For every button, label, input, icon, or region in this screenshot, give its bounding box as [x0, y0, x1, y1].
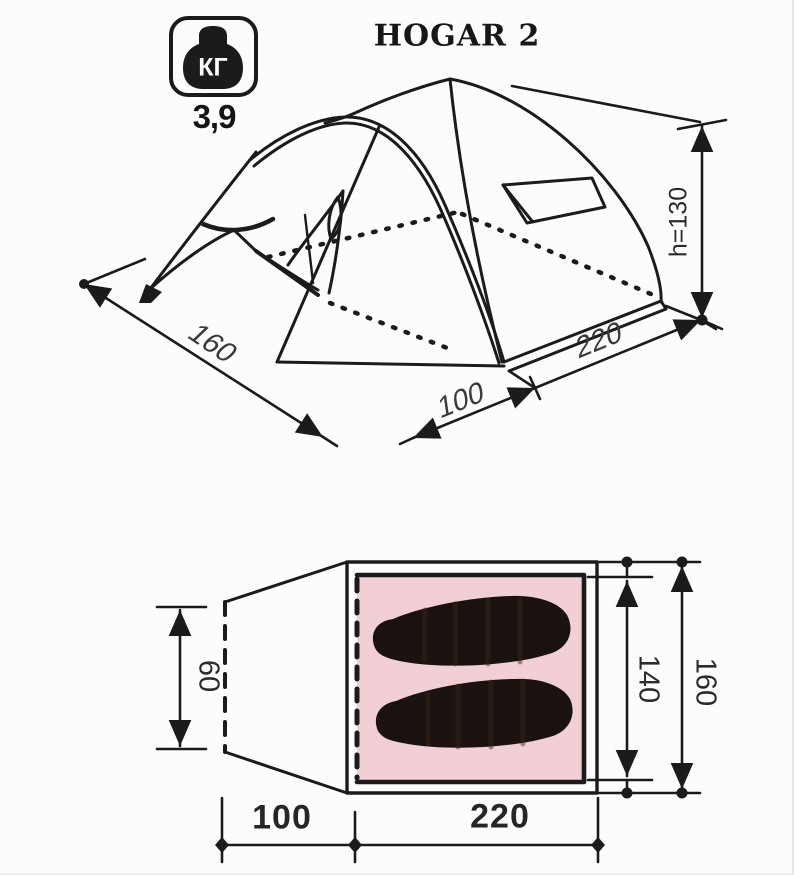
dim-label-plan-vestibule-length: 100 [252, 799, 312, 838]
tent-body-plan [347, 562, 597, 793]
weight-value: 3,9 [193, 98, 236, 136]
guy-line [84, 259, 145, 284]
weight-unit-label: КГ [198, 54, 227, 83]
diagram-linework [0, 0, 794, 875]
dim-label-plan-outer-width: 160 [689, 658, 722, 706]
floor-plan [157, 557, 700, 863]
dim-label-plan-vestibule-depth: 60 [192, 660, 225, 692]
side-window [503, 178, 605, 223]
vestibule-plan [225, 562, 347, 793]
dim-label-height: h=130 [665, 187, 694, 257]
tent-spec-diagram: HOGAR 2 КГ 3,9 160 100 220 h=130 60 140 … [0, 0, 794, 875]
awning-tip-foot [139, 284, 162, 303]
tent-perspective-view [79, 79, 726, 446]
dim-label-plan-inner-length: 220 [470, 798, 530, 837]
vestibule-awning [84, 152, 318, 303]
dim-label-plan-inner-width: 140 [632, 655, 665, 703]
product-title: HOGAR 2 [374, 19, 541, 54]
